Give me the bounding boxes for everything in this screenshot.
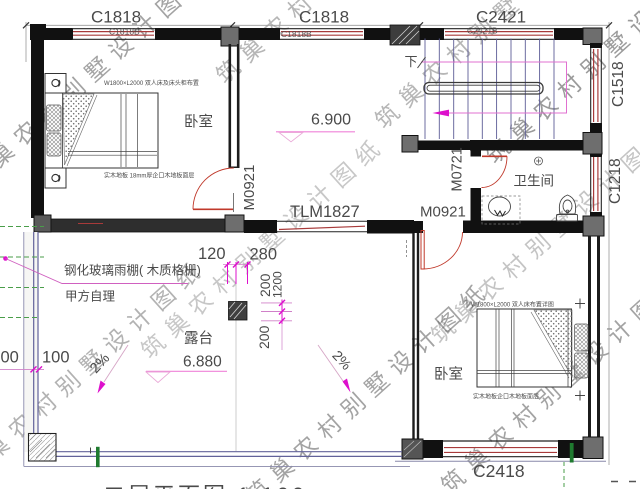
- svg-text:C1518: C1518: [610, 61, 627, 107]
- svg-text:C2421: C2421: [476, 8, 526, 27]
- svg-text:W1800×L2000 双人床布置详图: W1800×L2000 双人床布置详图: [471, 301, 554, 309]
- svg-text:120: 120: [198, 245, 226, 263]
- svg-text:C1818B: C1818B: [281, 29, 312, 39]
- svg-text:实木地板 18mm厚企口木地板面层: 实木地板 18mm厚企口木地板面层: [104, 172, 194, 180]
- svg-text:100: 100: [42, 349, 70, 367]
- svg-text:卧室: 卧室: [184, 114, 213, 131]
- svg-text:M0921: M0921: [241, 165, 258, 211]
- svg-text:C2418: C2418: [473, 461, 525, 481]
- svg-text:M0921: M0921: [420, 204, 466, 221]
- svg-text:1200: 1200: [271, 271, 285, 298]
- svg-text:C1818: C1818: [91, 8, 141, 27]
- svg-text:280: 280: [250, 246, 278, 264]
- svg-text:钢化玻璃雨棚( 木质格栅): 钢化玻璃雨棚( 木质格栅): [64, 263, 201, 278]
- svg-text:W1800×L2000 双人床及床头柜布置: W1800×L2000 双人床及床头柜布置: [104, 79, 199, 87]
- svg-text:C2421B: C2421B: [467, 26, 498, 36]
- svg-text:TLM1827: TLM1827: [290, 203, 360, 221]
- svg-text:卧室: 卧室: [434, 366, 463, 383]
- svg-text:实木地板企口木地板面层: 实木地板企口木地板面层: [473, 393, 539, 401]
- svg-text:露台: 露台: [184, 330, 213, 347]
- svg-text:6.900: 6.900: [311, 112, 351, 129]
- svg-text:C1818B: C1818B: [109, 27, 140, 37]
- svg-text:00: 00: [1, 349, 19, 367]
- svg-text:卫生间: 卫生间: [514, 174, 555, 189]
- svg-text:二层平面图 1:100: 二层平面图 1:100: [103, 483, 307, 489]
- svg-text:200: 200: [256, 325, 272, 349]
- svg-text:甲方自理: 甲方自理: [65, 289, 116, 304]
- svg-text:C1218: C1218: [607, 158, 624, 204]
- svg-text:6.880: 6.880: [183, 354, 222, 371]
- svg-text:M0721: M0721: [450, 147, 466, 191]
- svg-text:C1818: C1818: [299, 8, 349, 27]
- svg-text:下: 下: [405, 54, 418, 69]
